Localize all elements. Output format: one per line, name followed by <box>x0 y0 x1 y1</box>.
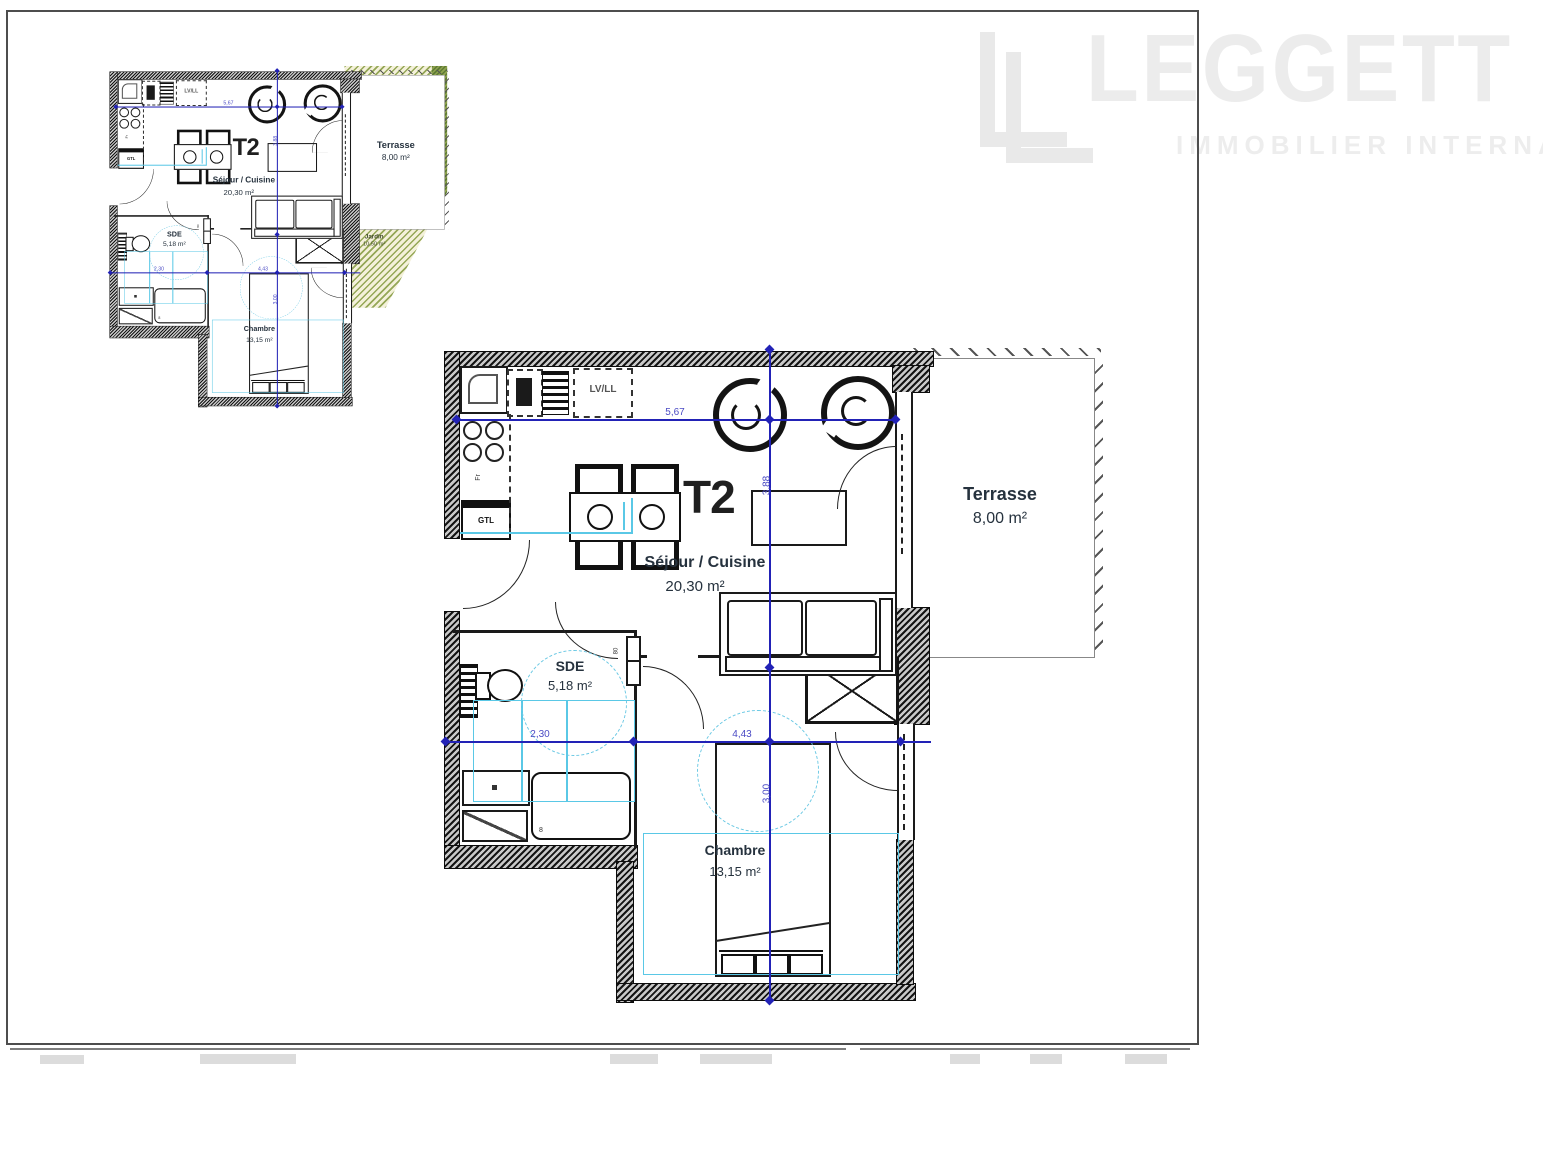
dim-height-sejour: 3,88 <box>273 130 279 151</box>
wall-chambre-right-lower <box>343 323 351 397</box>
sink-basin <box>122 83 137 98</box>
washer-label: LV/LL <box>177 88 206 95</box>
footer-ghost-text <box>200 1054 296 1064</box>
leggett-logo-inner-l-icon <box>1006 52 1093 163</box>
chambre-area: 13,15 m² <box>665 864 805 879</box>
sofa-cushion <box>727 600 803 656</box>
shower-tray <box>462 810 528 842</box>
terrace-right-ticks <box>1095 356 1103 658</box>
sde-pocket-door-b <box>203 231 211 244</box>
sejour-name: Séjour / Cuisine <box>595 554 815 572</box>
sofa-armrest <box>879 598 893 672</box>
sofa <box>719 592 897 676</box>
fridge-fill <box>516 378 532 406</box>
sofa-cushion <box>805 600 877 656</box>
burner-icon <box>119 119 129 129</box>
wall-top <box>110 72 361 79</box>
kitchen-cyan-line <box>118 165 207 166</box>
footer-ghost-text <box>40 1055 84 1064</box>
sejour-window-dashed <box>345 114 346 176</box>
armchair <box>821 376 895 450</box>
chambre-name: Chambre <box>665 842 805 858</box>
sde-area: 5,18 m² <box>147 240 202 248</box>
sde-name: SDE <box>154 230 195 238</box>
plate-icon <box>639 504 665 530</box>
sofa-seat-front <box>254 229 334 237</box>
dim-width-chambre: 4,43 <box>250 266 276 272</box>
wall-corner-top-right <box>341 79 360 92</box>
sofa <box>251 196 343 239</box>
footer-ghost-text <box>1125 1054 1167 1064</box>
kitchen-cyan-vline <box>631 498 633 534</box>
chambre-area: 13,15 m² <box>223 336 295 344</box>
sde-pocket-door-a <box>626 636 641 662</box>
table-center-tick <box>202 149 203 163</box>
dim-height-sejour: 3,88 <box>762 466 773 506</box>
jardin-area: 10,50 m² <box>346 241 403 247</box>
sde-pocket-door-b <box>626 660 641 686</box>
burner-icon <box>485 443 504 462</box>
fridge-fill <box>147 85 155 99</box>
plate-icon <box>210 150 223 163</box>
armchair-notch <box>304 106 314 116</box>
sejour-area: 20,30 m² <box>595 578 795 595</box>
terrace-door-arc <box>312 120 342 152</box>
wall-right-mid <box>895 608 929 724</box>
dim-line-vertical-axis <box>277 70 278 408</box>
apartment-plan: Pl. LV/LL Fr GTL <box>445 352 1105 1052</box>
leggett-watermark: LEGGETT IMMOBILIER INTERNATIONAL <box>980 18 1525 168</box>
terrasse-name: Terrasse <box>905 484 1095 505</box>
terrasse-area: 8,00 m² <box>905 510 1095 528</box>
burner-icon <box>485 421 504 440</box>
wall-top <box>445 352 933 366</box>
burner-icon <box>463 443 482 462</box>
dining-table <box>569 492 681 542</box>
cooktop <box>460 418 506 464</box>
wall-chambre-left <box>617 862 633 1002</box>
dim-line-width-sejour <box>455 419 897 421</box>
kitchen-cyan-line <box>460 532 632 534</box>
gtl-label: GTL <box>119 156 143 161</box>
kitchen-dashed-limit <box>143 104 144 166</box>
sejour-window-dashed <box>901 434 903 554</box>
armchair-inner <box>257 97 272 112</box>
cooktop <box>118 106 142 130</box>
armchair-notch <box>271 84 281 94</box>
fridge-label: Fr <box>475 474 482 481</box>
armchair-notch <box>821 418 841 437</box>
sofa-cushion <box>255 200 294 229</box>
shower-tray <box>119 308 153 324</box>
terrace-top-ticks <box>347 70 448 74</box>
chambre-door-arc <box>643 666 704 729</box>
apartment-plan: Pl. LV/LL Fr GTL <box>110 72 450 433</box>
terrace-slab <box>908 358 1095 658</box>
footer-ghost-text <box>950 1054 980 1064</box>
door-width-label: 80 <box>613 648 619 655</box>
burner-icon <box>463 421 482 440</box>
oven-grille <box>160 82 174 105</box>
oven-grille <box>542 371 569 415</box>
wall-corner-top-right <box>893 366 929 392</box>
bathtub-drain-label: 8 <box>158 317 160 321</box>
terrasse-area: 8,00 m² <box>347 153 445 162</box>
sofa-seat-front <box>725 656 881 672</box>
dim-height-chambre: 3,00 <box>273 289 279 310</box>
floorplan-page: { "watermark": { "brand": "LEGGETT", "ta… <box>0 0 1543 1164</box>
gtl-label: GTL <box>463 516 509 525</box>
dim-height-chambre: 3,00 <box>762 774 773 814</box>
armchair-inner <box>731 400 761 430</box>
sink-basin <box>468 374 498 404</box>
wall-sde-bottom <box>445 846 637 868</box>
kitchen-sink <box>460 366 508 414</box>
sejour-area: 20,30 m² <box>187 188 290 197</box>
dim-line-width-sejour <box>115 107 343 108</box>
plate-icon <box>183 150 196 163</box>
dim-width-sde: 2,30 <box>515 729 565 740</box>
wall-left-upper <box>110 72 117 168</box>
wall-chambre-right-lower <box>897 840 913 984</box>
terrasse-name: Terrasse <box>347 140 445 151</box>
watermark-tagline: IMMOBILIER INTERNATIONAL <box>1176 130 1543 161</box>
sde-name: SDE <box>530 658 610 674</box>
watermark-brand: LEGGETT <box>1086 14 1513 124</box>
dim-width-chambre: 4,43 <box>717 729 767 740</box>
armchair <box>248 85 286 123</box>
terrace-door-arc <box>837 446 896 509</box>
chambre-name: Chambre <box>223 324 295 332</box>
jardin-name: Jardin <box>346 233 403 240</box>
unit-type-label: T2 <box>233 133 260 161</box>
dim-width-sde: 2,30 <box>146 266 172 272</box>
dim-line-lower <box>445 741 931 743</box>
chambre-window-dashed <box>346 269 347 318</box>
burner-icon <box>119 108 129 118</box>
table-center-tick <box>623 502 625 530</box>
entry-door-arc <box>463 540 530 609</box>
armchair-notch <box>757 374 777 393</box>
washer-box: LV/LL <box>176 80 207 106</box>
terrace-slab <box>348 75 444 230</box>
wall-chambre-left <box>199 335 207 407</box>
armchair <box>713 378 787 452</box>
dim-width-sejour: 5,67 <box>213 100 244 106</box>
footer-ghost-text <box>610 1054 658 1064</box>
sofa-cushion <box>295 200 332 229</box>
footer-ghost-text <box>1030 1054 1062 1064</box>
washer-box: LV/LL <box>573 368 633 418</box>
terrace-right-ticks <box>445 74 449 230</box>
terrace-top-ticks <box>905 348 1101 356</box>
chambre-door-arc <box>212 234 243 266</box>
dim-width-sejour: 5,67 <box>645 407 705 418</box>
entry-door-arc <box>119 169 154 205</box>
armchair-inner <box>841 396 871 426</box>
fridge-box <box>142 81 161 106</box>
burner-icon <box>131 119 141 129</box>
sejour-name: Séjour / Cuisine <box>187 176 300 185</box>
chambre-window-dashed <box>903 734 905 830</box>
kitchen-dashed-limit <box>509 414 511 534</box>
dining-table <box>174 144 232 170</box>
wall-sde-bottom <box>110 326 209 337</box>
sofa-armrest <box>334 199 341 237</box>
bathtub-drain-label: 8 <box>539 827 543 834</box>
sde-area: 5,18 m² <box>517 678 623 693</box>
dim-line-vertical-axis <box>769 348 771 1004</box>
wall-left-lower <box>445 612 459 862</box>
kitchen-cyan-vline <box>206 147 207 166</box>
kitchen-sink <box>118 79 143 104</box>
burner-icon <box>131 108 141 118</box>
plate-icon <box>587 504 613 530</box>
fridge-label: Fr <box>125 135 129 138</box>
gtl-box: GTL <box>461 500 511 540</box>
fridge-box <box>507 369 543 417</box>
armchair <box>304 84 342 122</box>
gtl-box: GTL <box>118 148 144 169</box>
unit-type-label: T2 <box>683 470 735 524</box>
door-width-label: 80 <box>197 224 200 227</box>
washer-label: LV/LL <box>575 384 631 398</box>
armchair-inner <box>314 95 329 110</box>
dim-line-lower <box>110 272 360 273</box>
footer-ghost-text <box>700 1054 772 1064</box>
